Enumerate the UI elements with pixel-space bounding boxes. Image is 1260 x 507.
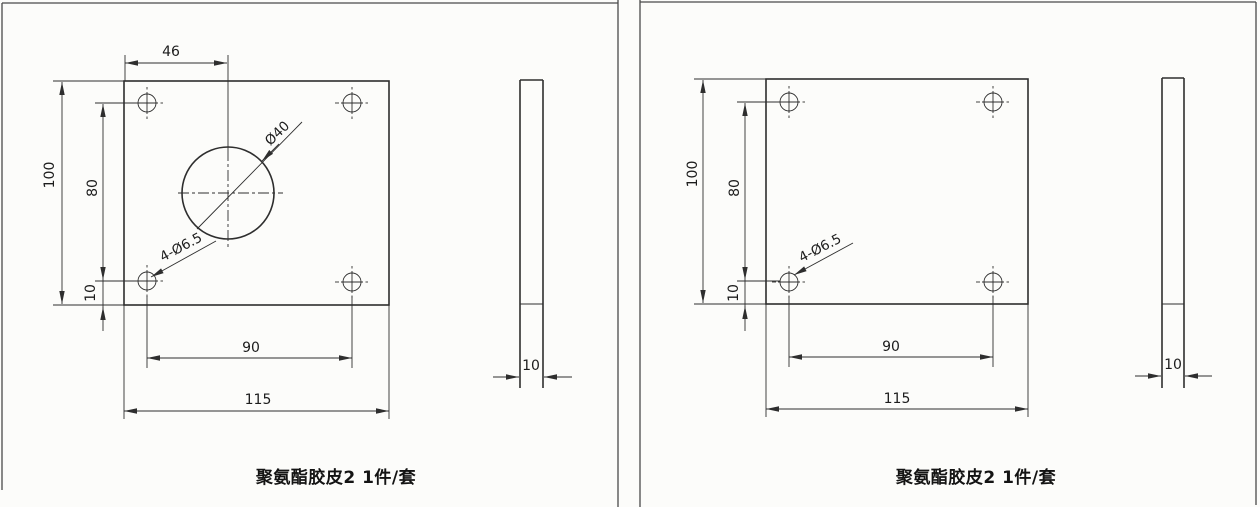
- dim-label-hole-vspan: 80: [727, 179, 743, 197]
- dim-label-hole-vspan: 80: [85, 179, 101, 197]
- sheet-left-borders: [2, 0, 618, 507]
- dim-label-hole-span: 90: [882, 339, 900, 355]
- sheet-right-borders: [640, 0, 1256, 507]
- sheet-caption: 聚氨酯胶皮2 1件/套: [895, 467, 1057, 488]
- dim-label-height: 100: [685, 161, 701, 188]
- dim-label-edge-gap: 10: [726, 284, 742, 302]
- dim-label-height: 100: [42, 162, 58, 189]
- plate-outline: [124, 81, 389, 305]
- drawing-canvas: 100 80 10 Ø40 4-Ø6.5: [0, 0, 1260, 507]
- label-center-hole-dia: Ø40: [262, 118, 293, 149]
- dim-label-edge-gap: 10: [83, 284, 99, 302]
- dim-label-width: 115: [245, 392, 272, 408]
- bolt-hole: [772, 266, 805, 298]
- dim-label-hole-span: 90: [242, 340, 260, 356]
- plate-outline: [766, 79, 1028, 304]
- dim-label-width: 115: [884, 391, 911, 407]
- right-side-view: 10: [1135, 78, 1212, 388]
- sheet-right: 100 80 10 4-Ø6.5 90: [640, 0, 1256, 507]
- left-side-view: 10: [493, 80, 572, 388]
- sheet-caption: 聚氨酯胶皮2 1件/套: [255, 467, 417, 488]
- dim-label-circle-offset: 46: [162, 44, 180, 60]
- dim-label-thickness: 10: [522, 358, 540, 374]
- dim-label-thickness: 10: [1164, 357, 1182, 373]
- sheet-left: 100 80 10 Ø40 4-Ø6.5: [2, 0, 618, 507]
- right-front-view: 100 80 10 4-Ø6.5 90: [685, 79, 1028, 417]
- left-front-view: 100 80 10 Ø40 4-Ø6.5: [42, 44, 389, 419]
- bolt-hole: [335, 87, 368, 119]
- scanned-drawing-page: 100 80 10 Ø40 4-Ø6.5: [0, 0, 1260, 507]
- bolt-hole: [976, 86, 1009, 118]
- bolt-hole: [335, 266, 368, 298]
- leader-line-circle: [197, 122, 302, 229]
- bolt-hole: [976, 266, 1009, 298]
